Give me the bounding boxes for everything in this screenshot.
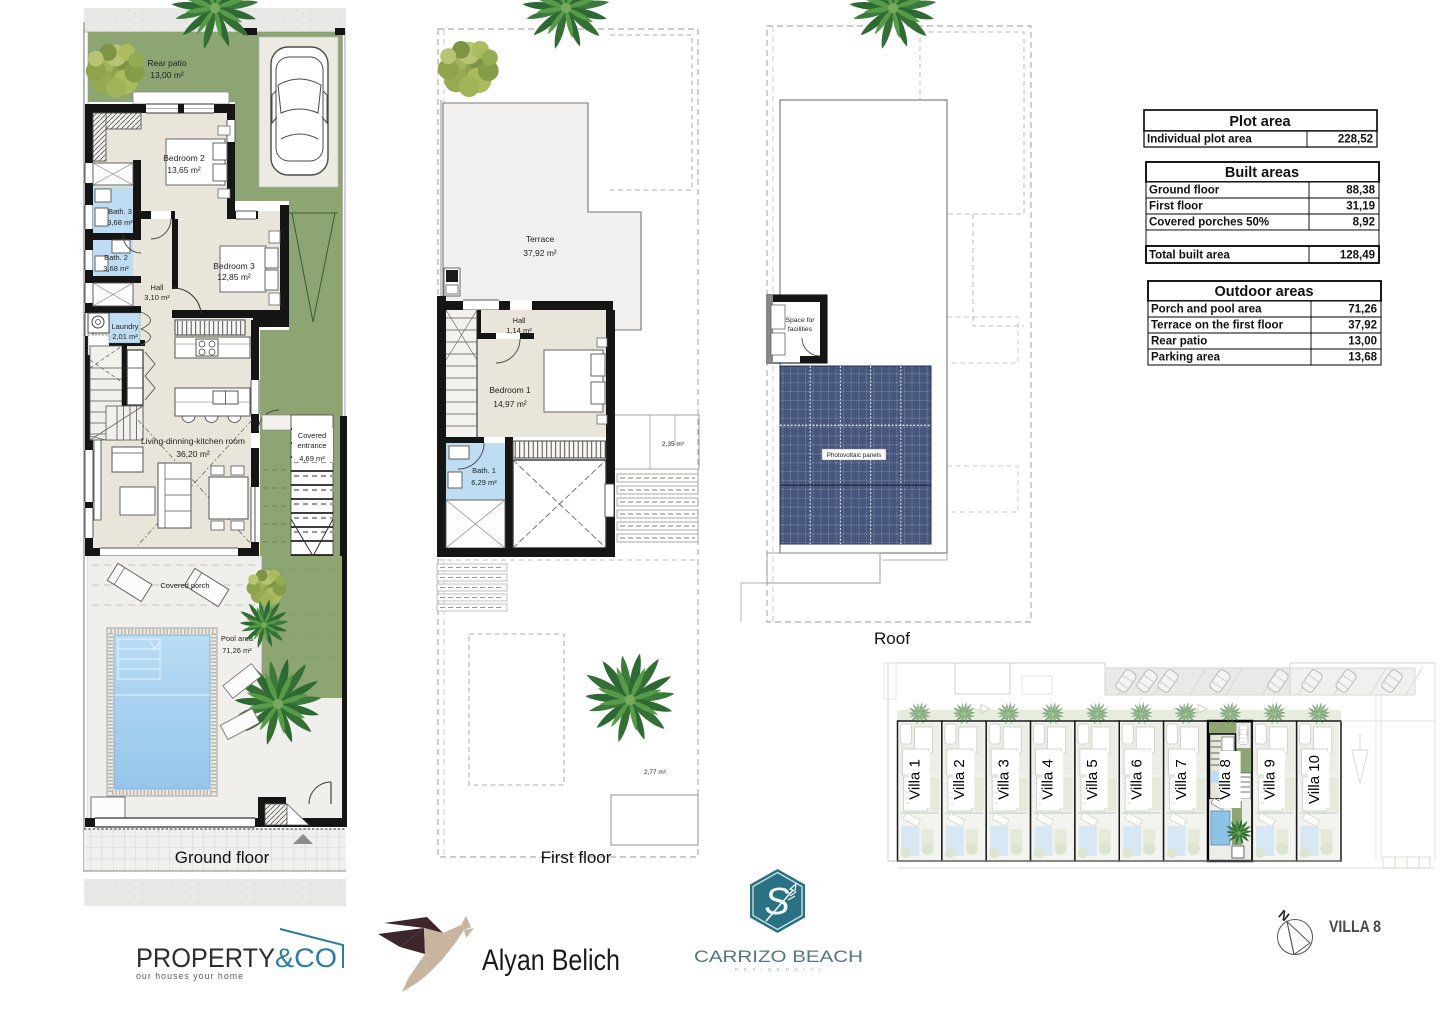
svg-text:2,77 m²: 2,77 m²	[644, 769, 667, 776]
svg-text:Villa 1: Villa 1	[907, 759, 924, 800]
svg-text:3,68 m²: 3,68 m²	[103, 264, 129, 273]
svg-text:Bedroom 1: Bedroom 1	[489, 385, 531, 395]
svg-text:our houses your home: our houses your home	[136, 971, 243, 981]
svg-text:Terrace: Terrace	[526, 234, 555, 244]
svg-text:88,38: 88,38	[1346, 185, 1375, 197]
svg-text:3,10 m²: 3,10 m²	[144, 293, 170, 302]
svg-text:Individual plot area: Individual plot area	[1147, 134, 1252, 146]
svg-text:12,85 m²: 12,85 m²	[217, 272, 251, 282]
svg-text:Ground floor: Ground floor	[1149, 185, 1220, 197]
svg-text:Villa 9: Villa 9	[1261, 759, 1278, 800]
svg-text:13,65 m²: 13,65 m²	[167, 165, 201, 175]
svg-text:Bath. 2: Bath. 2	[104, 253, 128, 262]
svg-text:228,52: 228,52	[1338, 134, 1373, 146]
svg-text:Total built area: Total built area	[1149, 250, 1231, 262]
svg-text:Bath. 3: Bath. 3	[108, 207, 132, 216]
svg-text:Plot area: Plot area	[1229, 114, 1291, 130]
svg-text:3,68 m²: 3,68 m²	[107, 218, 133, 227]
svg-text:2,01 m²: 2,01 m²	[112, 332, 138, 341]
svg-text:71,26 m²: 71,26 m²	[222, 646, 252, 655]
svg-text:Bedroom 2: Bedroom 2	[163, 153, 205, 163]
svg-text:Bath. 1: Bath. 1	[472, 466, 496, 475]
svg-text:37,92 m²: 37,92 m²	[523, 248, 557, 258]
svg-text:36,20 m²: 36,20 m²	[176, 449, 210, 459]
svg-text:Villa 10: Villa 10	[1306, 755, 1323, 804]
svg-text:31,19: 31,19	[1346, 201, 1375, 213]
svg-text:37,92: 37,92	[1348, 320, 1377, 332]
svg-text:Rear patio: Rear patio	[147, 58, 186, 68]
svg-text:4,69 m²: 4,69 m²	[299, 454, 325, 463]
svg-text:Villa 4: Villa 4	[1040, 759, 1057, 800]
svg-text:Outdoor areas: Outdoor areas	[1214, 284, 1313, 300]
svg-text:128,49: 128,49	[1340, 250, 1375, 262]
svg-text:Villa 6: Villa 6	[1128, 759, 1145, 800]
svg-text:S: S	[764, 881, 789, 923]
svg-text:Alyan Belich: Alyan Belich	[482, 944, 620, 977]
svg-text:Ground floor: Ground floor	[175, 848, 270, 867]
svg-text:Villa 7: Villa 7	[1173, 759, 1190, 800]
svg-text:CARRIZO BEACH: CARRIZO BEACH	[694, 948, 863, 966]
svg-text:Villa 2: Villa 2	[951, 759, 968, 800]
svg-text:Villa 3: Villa 3	[995, 759, 1012, 800]
svg-text:Covered porch: Covered porch	[160, 581, 209, 590]
svg-text:Laundry: Laundry	[111, 322, 138, 331]
svg-text:Space for: Space for	[785, 317, 815, 324]
svg-text:6,29 m²: 6,29 m²	[471, 478, 497, 487]
svg-text:First floor: First floor	[541, 848, 612, 867]
svg-text:Hall: Hall	[151, 283, 164, 292]
svg-text:Living-dinning-kitchen room: Living-dinning-kitchen room	[141, 436, 245, 446]
svg-text:Covered: Covered	[298, 431, 326, 440]
svg-text:facilities: facilities	[788, 326, 813, 333]
svg-text:13,00: 13,00	[1348, 336, 1377, 348]
svg-text:Rear patio: Rear patio	[1151, 336, 1207, 348]
svg-text:Roof: Roof	[874, 629, 910, 648]
svg-text:1,14 m²: 1,14 m²	[506, 326, 532, 335]
svg-text:VILLA 8: VILLA 8	[1329, 918, 1381, 936]
svg-text:71,26: 71,26	[1348, 304, 1377, 316]
svg-text:14,97 m²: 14,97 m²	[493, 399, 527, 409]
svg-text:13,68: 13,68	[1348, 352, 1377, 364]
svg-text:Hall: Hall	[513, 316, 526, 325]
svg-text:entrance: entrance	[297, 441, 326, 450]
svg-text:Photovoltaic panels: Photovoltaic panels	[827, 452, 882, 459]
svg-text:Porch and pool area: Porch and pool area	[1151, 304, 1262, 316]
svg-text:Built areas: Built areas	[1225, 165, 1299, 181]
svg-text:Bedroom 3: Bedroom 3	[213, 261, 255, 271]
svg-text:Villa 5: Villa 5	[1084, 759, 1101, 800]
svg-text:Villa 8: Villa 8	[1217, 759, 1234, 800]
svg-text:13,00 m²: 13,00 m²	[150, 70, 184, 80]
svg-text:Terrace on the first floor: Terrace on the first floor	[1151, 320, 1284, 332]
svg-text:Covered porches 50%: Covered porches 50%	[1149, 217, 1269, 229]
svg-text:PROPERTY&CO: PROPERTY&CO	[136, 943, 337, 973]
svg-text:8,92: 8,92	[1353, 217, 1375, 229]
svg-text:Parking area: Parking area	[1151, 352, 1221, 364]
svg-text:2,35 m²: 2,35 m²	[662, 441, 685, 448]
svg-text:First floor: First floor	[1149, 201, 1203, 213]
